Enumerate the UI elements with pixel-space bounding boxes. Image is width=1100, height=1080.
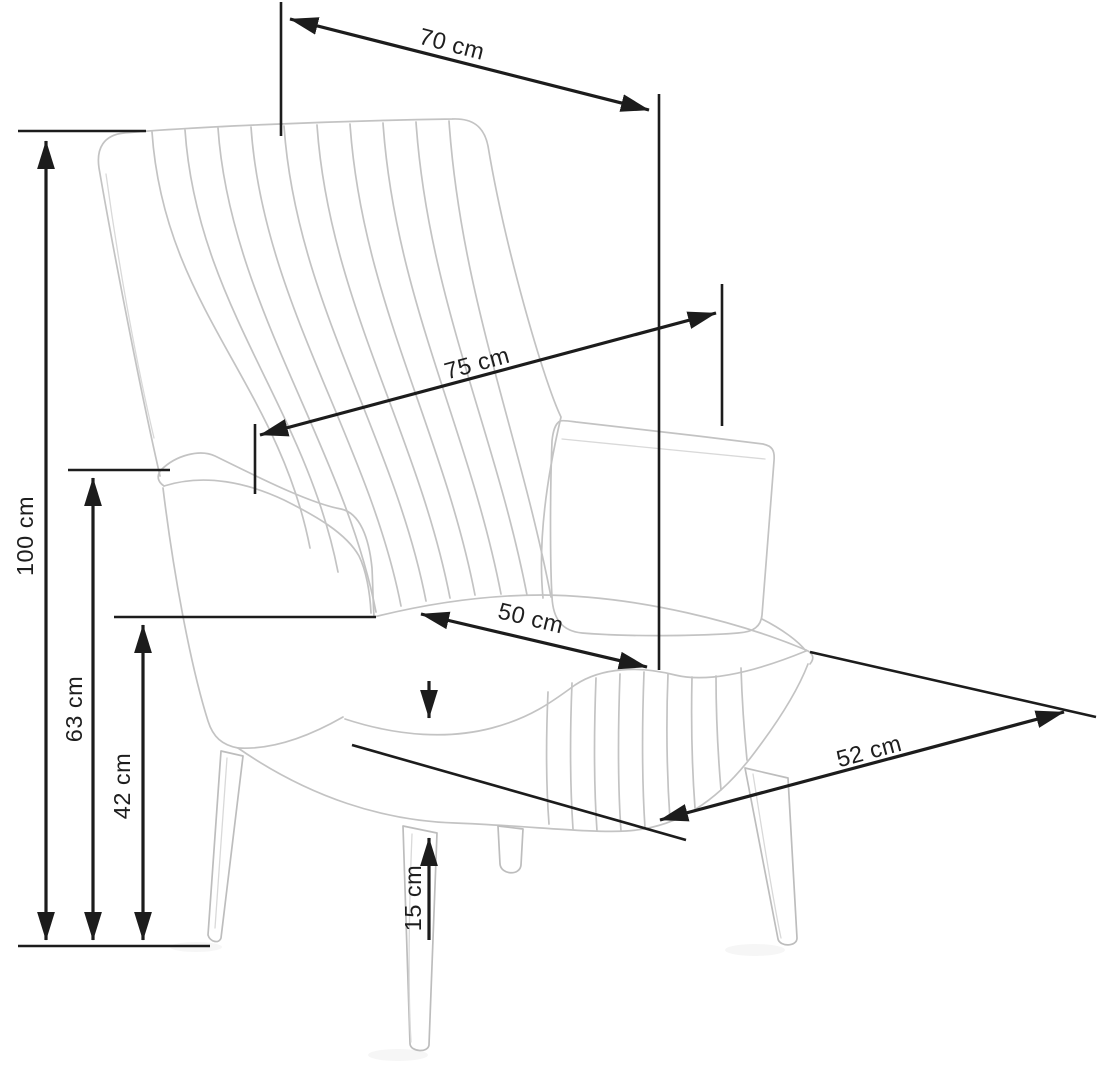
channel-seam — [317, 125, 450, 598]
dimension-label-52cm: 52 cm — [834, 730, 905, 772]
dimension-label-63cm: 63 cm — [61, 676, 87, 743]
seat — [238, 595, 813, 831]
dimension-63cm: 63 cm — [61, 470, 170, 940]
piping-seam — [667, 674, 670, 820]
piping-seam — [716, 676, 721, 790]
dimension-label-42cm: 42 cm — [109, 753, 135, 820]
armrest-top-outer-edge — [161, 453, 374, 616]
piping-seam — [595, 678, 597, 831]
legs — [208, 751, 797, 1051]
right-arm-outline — [551, 421, 775, 636]
channel-seam — [152, 132, 310, 548]
dimension-50cm: 50 cm — [421, 598, 647, 667]
dimension-15cm: 15 cm — [400, 681, 429, 940]
channel-seam — [218, 128, 376, 612]
seat-underside-edge — [238, 664, 808, 831]
dimension-52cm: 52 cm — [352, 652, 1096, 840]
back-center-leg — [498, 826, 523, 873]
armrest-top-inner-edge — [164, 480, 371, 613]
seat-front-piping — [547, 668, 747, 831]
diagram-canvas: 70 cm 75 cm 100 cm 63 cm 42 cm 50 cm — [0, 0, 1100, 1080]
dimension-arrow — [260, 313, 716, 435]
leg-shadow — [725, 944, 785, 956]
armchair-dimension-diagram: 70 cm 75 cm 100 cm 63 cm 42 cm 50 cm — [0, 0, 1100, 1080]
chair-line-art — [98, 119, 812, 1061]
dimension-label-15cm: 15 cm — [400, 865, 426, 932]
seat-back-crease — [374, 595, 806, 650]
right-arm-inner-top-line — [562, 439, 765, 459]
dimension-arrow — [290, 19, 649, 110]
dimension-label-100cm: 100 cm — [12, 496, 38, 576]
seat-cushion-front-edge — [345, 651, 806, 735]
piping-seam — [741, 668, 747, 760]
dimension-42cm: 42 cm — [109, 617, 376, 940]
arm-side-bottom-edge — [238, 717, 343, 748]
piping-seam — [547, 692, 549, 824]
dimension-label-50cm: 50 cm — [496, 598, 567, 639]
backrest-wing-crease — [106, 174, 154, 438]
dimension-75cm: 75 cm — [255, 284, 722, 494]
piping-seam — [643, 672, 645, 828]
dimension-annotations: 70 cm 75 cm 100 cm 63 cm 42 cm 50 cm — [12, 2, 1096, 946]
extension-line — [810, 652, 1096, 717]
front-center-leg — [403, 826, 437, 1051]
piping-seam — [619, 674, 621, 831]
piping-seam — [692, 677, 695, 808]
right-armrest — [551, 421, 807, 651]
armrest-front-tip — [158, 470, 164, 486]
